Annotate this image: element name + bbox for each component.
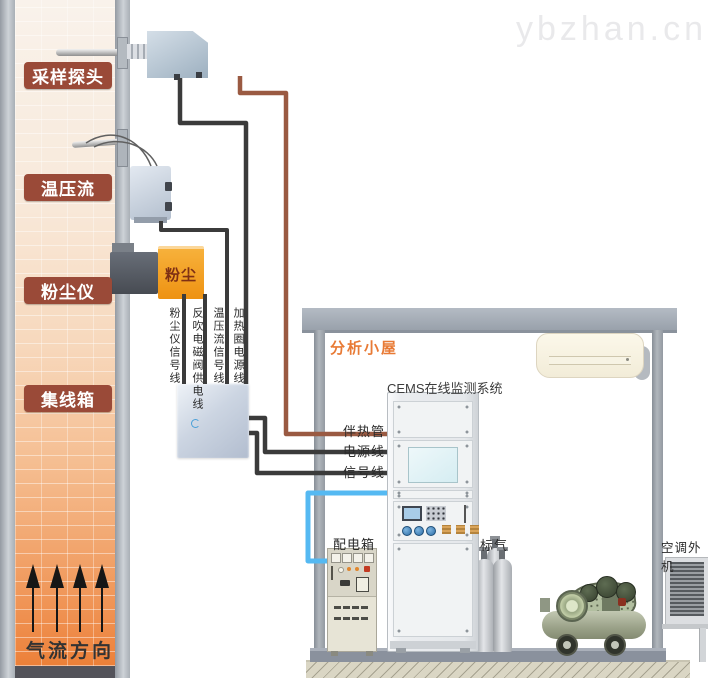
tpf-bracket bbox=[117, 129, 128, 167]
flow-direction-label: 气流方向 bbox=[26, 636, 114, 663]
cems-cabinet-title: CEMS在线监测系统 bbox=[387, 378, 503, 397]
ac-outdoor-label: 空调外机 bbox=[661, 537, 708, 575]
standard-gas-label: 标气 bbox=[480, 535, 508, 554]
sampling-probe-rod bbox=[56, 49, 124, 56]
up-arrow-icon bbox=[73, 564, 87, 634]
cabin-wall-right bbox=[652, 330, 663, 650]
cable-label-heat-trace: 伴热管 bbox=[343, 421, 385, 440]
cable-label-blowback-power: 反吹电磁阀供电线 bbox=[189, 307, 205, 411]
gauge-knob bbox=[414, 526, 424, 536]
dust-meter-box: 粉尘 bbox=[158, 246, 204, 299]
controller-keypad bbox=[426, 506, 446, 521]
compressor-valve bbox=[618, 598, 626, 606]
cable-label-dust-signal: 粉尘仪信号线 bbox=[166, 307, 182, 385]
sampling-probe-joint bbox=[127, 44, 148, 59]
up-arrow-icon bbox=[50, 564, 64, 634]
pdb-upper-panel bbox=[328, 549, 376, 597]
cabinet-panel-analyzer bbox=[393, 440, 473, 488]
gauge-knob bbox=[426, 526, 436, 536]
ac-vent bbox=[549, 356, 631, 365]
compressor-cylinder-head bbox=[596, 576, 618, 598]
sampling-probe-box bbox=[147, 31, 208, 78]
indicator-light bbox=[355, 567, 359, 571]
indicator-light bbox=[347, 567, 351, 571]
controller-slider bbox=[464, 505, 466, 523]
compressor-tank bbox=[542, 611, 646, 639]
emergency-button bbox=[364, 566, 370, 572]
pdb-foot bbox=[331, 651, 338, 656]
stack-wall-right bbox=[115, 0, 130, 678]
cabinet-panel-controller bbox=[393, 501, 473, 541]
label-dust-meter: 粉尘仪 bbox=[24, 277, 112, 304]
power-distribution-box bbox=[327, 548, 377, 652]
junction-box-logo bbox=[191, 419, 200, 428]
stack-bottom-cap bbox=[15, 666, 115, 678]
cabinet-foot bbox=[460, 648, 470, 653]
probe-connector bbox=[196, 72, 202, 78]
pdb-meter bbox=[356, 577, 369, 592]
label-junction-box: 集线箱 bbox=[24, 385, 112, 412]
tpf-transmitter-box bbox=[130, 166, 171, 220]
indicator-light bbox=[338, 567, 344, 573]
terminal-block bbox=[442, 525, 451, 534]
cabin-wall-left bbox=[314, 330, 325, 650]
up-arrow-icon bbox=[26, 564, 40, 634]
junction-box bbox=[177, 383, 249, 458]
compressor-wheel bbox=[556, 634, 578, 656]
tpf-connector bbox=[165, 202, 172, 211]
compressor-switch-box bbox=[540, 598, 550, 612]
cable-label-heater-power: 加热圈电源线 bbox=[230, 307, 246, 385]
cabinet-foot bbox=[396, 648, 406, 653]
cabinet-panel-vent bbox=[393, 490, 473, 499]
analyzer-window bbox=[408, 447, 458, 483]
controller-display bbox=[402, 506, 422, 521]
cable-label-power: 电源线 bbox=[343, 441, 385, 460]
ac-support-leg bbox=[699, 628, 706, 662]
ac-indicator bbox=[626, 358, 629, 361]
label-temp-pressure-flow: 温压流 bbox=[24, 174, 112, 201]
label-sampling-probe: 采样探头 bbox=[24, 62, 112, 89]
terminal-block bbox=[456, 525, 465, 534]
cabinet-panel-lower bbox=[393, 543, 473, 637]
gauge-knob bbox=[402, 526, 412, 536]
cable-label-tpf-signal: 温压流信号线 bbox=[210, 307, 226, 385]
compressor-fan bbox=[556, 590, 588, 622]
probe-connector bbox=[174, 74, 180, 80]
cabin-title: 分析小屋 bbox=[330, 337, 398, 358]
power-distribution-label: 配电箱 bbox=[333, 534, 375, 553]
dust-meter-body bbox=[110, 252, 158, 294]
ground-foundation bbox=[306, 660, 690, 678]
tpf-connector bbox=[165, 182, 172, 191]
compressor-wheel bbox=[604, 634, 626, 656]
pdb-foot bbox=[366, 651, 373, 656]
stack-wall-left bbox=[0, 0, 15, 678]
cabin-roof bbox=[302, 308, 677, 333]
tpf-base-plate bbox=[134, 217, 167, 223]
cems-cabinet bbox=[387, 392, 479, 652]
cems-system-diagram: ybzhan.cn 采样探头 温压流 粉尘仪 集线箱 气流方向 粉尘 分析小屋 bbox=[0, 0, 708, 678]
gas-cylinder bbox=[493, 559, 512, 652]
up-arrow-icon bbox=[95, 564, 109, 634]
pdb-marking bbox=[331, 566, 333, 580]
cable-label-signal: 信号线 bbox=[343, 462, 385, 481]
pdb-switch bbox=[340, 580, 350, 586]
cabinet-panel-blank bbox=[393, 401, 473, 438]
watermark: ybzhan.cn bbox=[516, 10, 707, 49]
ac-indoor-unit bbox=[536, 333, 644, 378]
terminal-block bbox=[470, 525, 479, 534]
